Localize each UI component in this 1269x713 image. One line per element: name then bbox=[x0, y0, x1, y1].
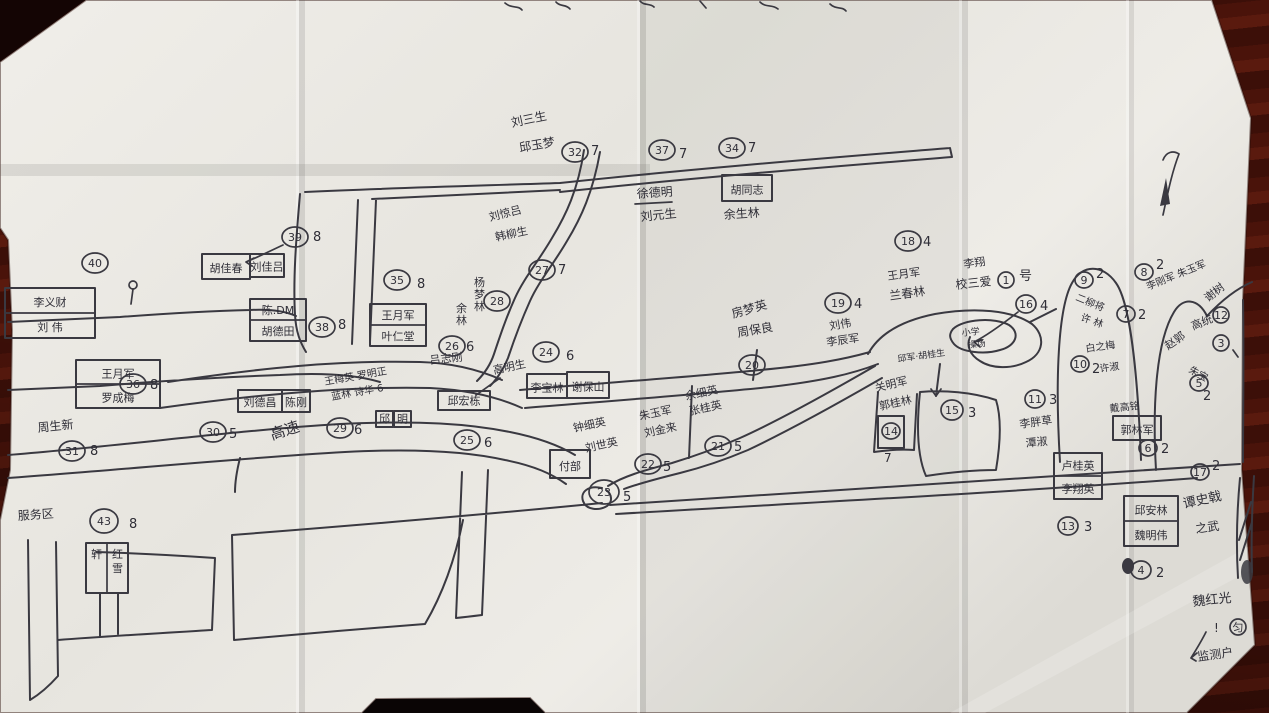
circled-number-value: 21 bbox=[711, 440, 725, 453]
circled-number-suffix: 2 bbox=[1203, 389, 1211, 404]
map-label: 潭淑 bbox=[1025, 435, 1048, 450]
map-label: 余生林 bbox=[723, 205, 760, 222]
map-label: 7 bbox=[884, 451, 892, 465]
map-vertical-label: 杨 bbox=[474, 275, 485, 289]
house-box-name: 李义财 bbox=[34, 295, 67, 309]
circled-number-value: 匀 bbox=[1233, 621, 1244, 634]
circled-number-value: 40 bbox=[88, 257, 102, 270]
house-box-name: 陈.DM bbox=[262, 303, 294, 317]
map-vertical-label: 林 bbox=[456, 313, 467, 327]
house-box-name: 胡同志 bbox=[731, 183, 764, 197]
house-box-name: 明 bbox=[397, 413, 408, 426]
circled-number-value: 11 bbox=[1028, 393, 1042, 406]
house-box-name: 邱 bbox=[379, 413, 390, 426]
circled-number-value: 37 bbox=[655, 144, 669, 157]
circled-number-suffix: 2 bbox=[1212, 459, 1220, 474]
circled-number-value: 4 bbox=[1138, 564, 1145, 577]
circled-number-value: 27 bbox=[535, 264, 549, 277]
circled-number-suffix: 7 bbox=[591, 144, 599, 159]
circled-number-suffix: 5 bbox=[734, 440, 742, 455]
map-label: ! bbox=[1214, 621, 1219, 635]
house-box-name: 谢保山 bbox=[572, 380, 605, 394]
circled-number-suffix: 8 bbox=[313, 230, 321, 245]
map-label: 服务区 bbox=[17, 506, 54, 523]
circled-number-suffix: 8 bbox=[417, 277, 425, 292]
map-vertical-label: 余 bbox=[456, 301, 467, 315]
circled-number-suffix: 2 bbox=[1161, 442, 1169, 457]
house-box-name: 红 bbox=[112, 548, 123, 561]
circled-number-suffix: 2 bbox=[1096, 267, 1104, 282]
house-box-name: 王月军 bbox=[382, 309, 415, 322]
paper-sheet bbox=[0, 0, 1255, 713]
house-box-name: 李翔英 bbox=[1062, 482, 1095, 496]
circled-number-value: 23 bbox=[597, 486, 611, 499]
paper-edge-shadow bbox=[362, 698, 545, 713]
circled-number-value: 3 bbox=[1218, 337, 1225, 350]
house-box-name: 胡佳春 bbox=[210, 261, 243, 275]
circled-number-value: 29 bbox=[333, 422, 347, 435]
house-box-name: 罗成梅 bbox=[102, 390, 135, 404]
circled-number-suffix: 5 bbox=[229, 427, 237, 442]
circled-number-value: 16 bbox=[1019, 298, 1033, 311]
circled-number-suffix: 7 bbox=[748, 141, 756, 156]
circled-number-value: 14 bbox=[884, 425, 898, 438]
map-label: 徐德明 bbox=[636, 184, 673, 201]
circled-number-value: 26 bbox=[445, 340, 459, 353]
circled-number-suffix: 2 bbox=[1138, 308, 1146, 323]
circled-number-suffix: 5 bbox=[663, 460, 671, 475]
circled-number-value: 15 bbox=[945, 404, 959, 417]
house-box-name: 刘德昌 bbox=[244, 395, 277, 409]
circled-number-value: 20 bbox=[745, 359, 759, 372]
photo-of-hand-drawn-map: 刘三生邱玉梦刘惊吕韩柳生徐德明刘元生余生林周生新服务区高速王梅英 罗明正蓝林 诗… bbox=[0, 0, 1269, 713]
house-box-name: 邱宏栋 bbox=[448, 394, 481, 408]
circled-number-value: 34 bbox=[725, 142, 739, 155]
circled-number-value: 17 bbox=[1193, 466, 1207, 479]
circled-number-suffix: 2 bbox=[1156, 566, 1164, 581]
circled-number-suffix: 4 bbox=[1040, 299, 1048, 314]
circled-number-suffix: 4 bbox=[854, 297, 862, 312]
circled-number-value: 19 bbox=[831, 297, 845, 310]
circled-number-suffix: 6 bbox=[566, 349, 574, 364]
circled-number-suffix: 4 bbox=[923, 235, 931, 250]
circled-number-value: 7 bbox=[1123, 308, 1130, 321]
circled-number-suffix: 8 bbox=[129, 517, 137, 532]
house-box-name: 雪 bbox=[112, 562, 123, 575]
circled-number-value: 13 bbox=[1061, 520, 1075, 533]
house-box-name: 刘 伟 bbox=[37, 321, 63, 334]
circled-number-value: 38 bbox=[315, 321, 329, 334]
circled-number-suffix: 5 bbox=[623, 490, 631, 505]
circled-number-value: 31 bbox=[65, 445, 79, 458]
house-box-name: 叶仁堂 bbox=[382, 330, 415, 343]
circled-number-value: 25 bbox=[460, 434, 474, 447]
circled-number-value: 32 bbox=[568, 146, 582, 159]
house-box-name: 付部 bbox=[559, 459, 581, 473]
circled-number-value: 35 bbox=[390, 274, 404, 287]
house-box-name: 邱安林 bbox=[1135, 503, 1168, 517]
house-box-name: 轩 bbox=[91, 547, 102, 561]
circled-number-value: 5 bbox=[1196, 377, 1203, 390]
circled-number-value: 22 bbox=[641, 458, 655, 471]
house-box-name: 郭林军 bbox=[1121, 422, 1154, 436]
house-box-name: 魏明伟 bbox=[1135, 528, 1168, 542]
circled-number-value: 28 bbox=[490, 295, 504, 308]
house-box-name: 卢桂英 bbox=[1062, 459, 1095, 473]
circled-number-value: 6 bbox=[1145, 442, 1152, 455]
circled-number-suffix: 2 bbox=[1156, 258, 1164, 273]
circled-number-suffix: 8 bbox=[90, 444, 98, 459]
circled-number-suffix: 7 bbox=[679, 147, 687, 162]
circled-number-suffix: 号 bbox=[1019, 269, 1032, 284]
house-box-name: 胡德田 bbox=[262, 324, 295, 338]
map-photo-canvas: 刘三生邱玉梦刘惊吕韩柳生徐德明刘元生余生林周生新服务区高速王梅英 罗明正蓝林 诗… bbox=[0, 0, 1269, 713]
circled-number-suffix: 6 bbox=[354, 423, 362, 438]
circled-number-suffix: 6 bbox=[466, 340, 474, 355]
house-box-name: 李宝林 bbox=[531, 380, 564, 394]
circled-number-value: 30 bbox=[206, 426, 220, 439]
house-box-name: 刘佳吕 bbox=[251, 260, 284, 274]
circled-number-value: 8 bbox=[1141, 266, 1148, 279]
circled-number-suffix: 3 bbox=[1084, 520, 1092, 535]
house-box-name: 陈刚 bbox=[285, 395, 307, 409]
circled-number-value: 18 bbox=[901, 235, 915, 248]
circled-number-suffix: 8 bbox=[338, 318, 346, 333]
circled-number-value: 9 bbox=[1081, 274, 1088, 287]
ink-scribble bbox=[1241, 560, 1253, 584]
circled-number-suffix: 6 bbox=[484, 436, 492, 451]
circled-number-value: 1 bbox=[1003, 274, 1010, 287]
circled-number-value: 24 bbox=[539, 346, 553, 359]
circled-number-value: 43 bbox=[97, 515, 111, 528]
circled-number-suffix: 3 bbox=[1049, 393, 1057, 408]
circled-number-value: 12 bbox=[1214, 309, 1228, 322]
circled-number-suffix: 8 bbox=[150, 378, 158, 393]
house-box-name: 王月军 bbox=[102, 367, 135, 380]
circled-number-value: 39 bbox=[288, 231, 302, 244]
circled-number-suffix: 3 bbox=[968, 406, 976, 421]
circled-number-value: 10 bbox=[1073, 358, 1087, 371]
circled-number-suffix: 2 bbox=[1092, 362, 1100, 377]
circled-number-suffix: 7 bbox=[558, 263, 566, 278]
